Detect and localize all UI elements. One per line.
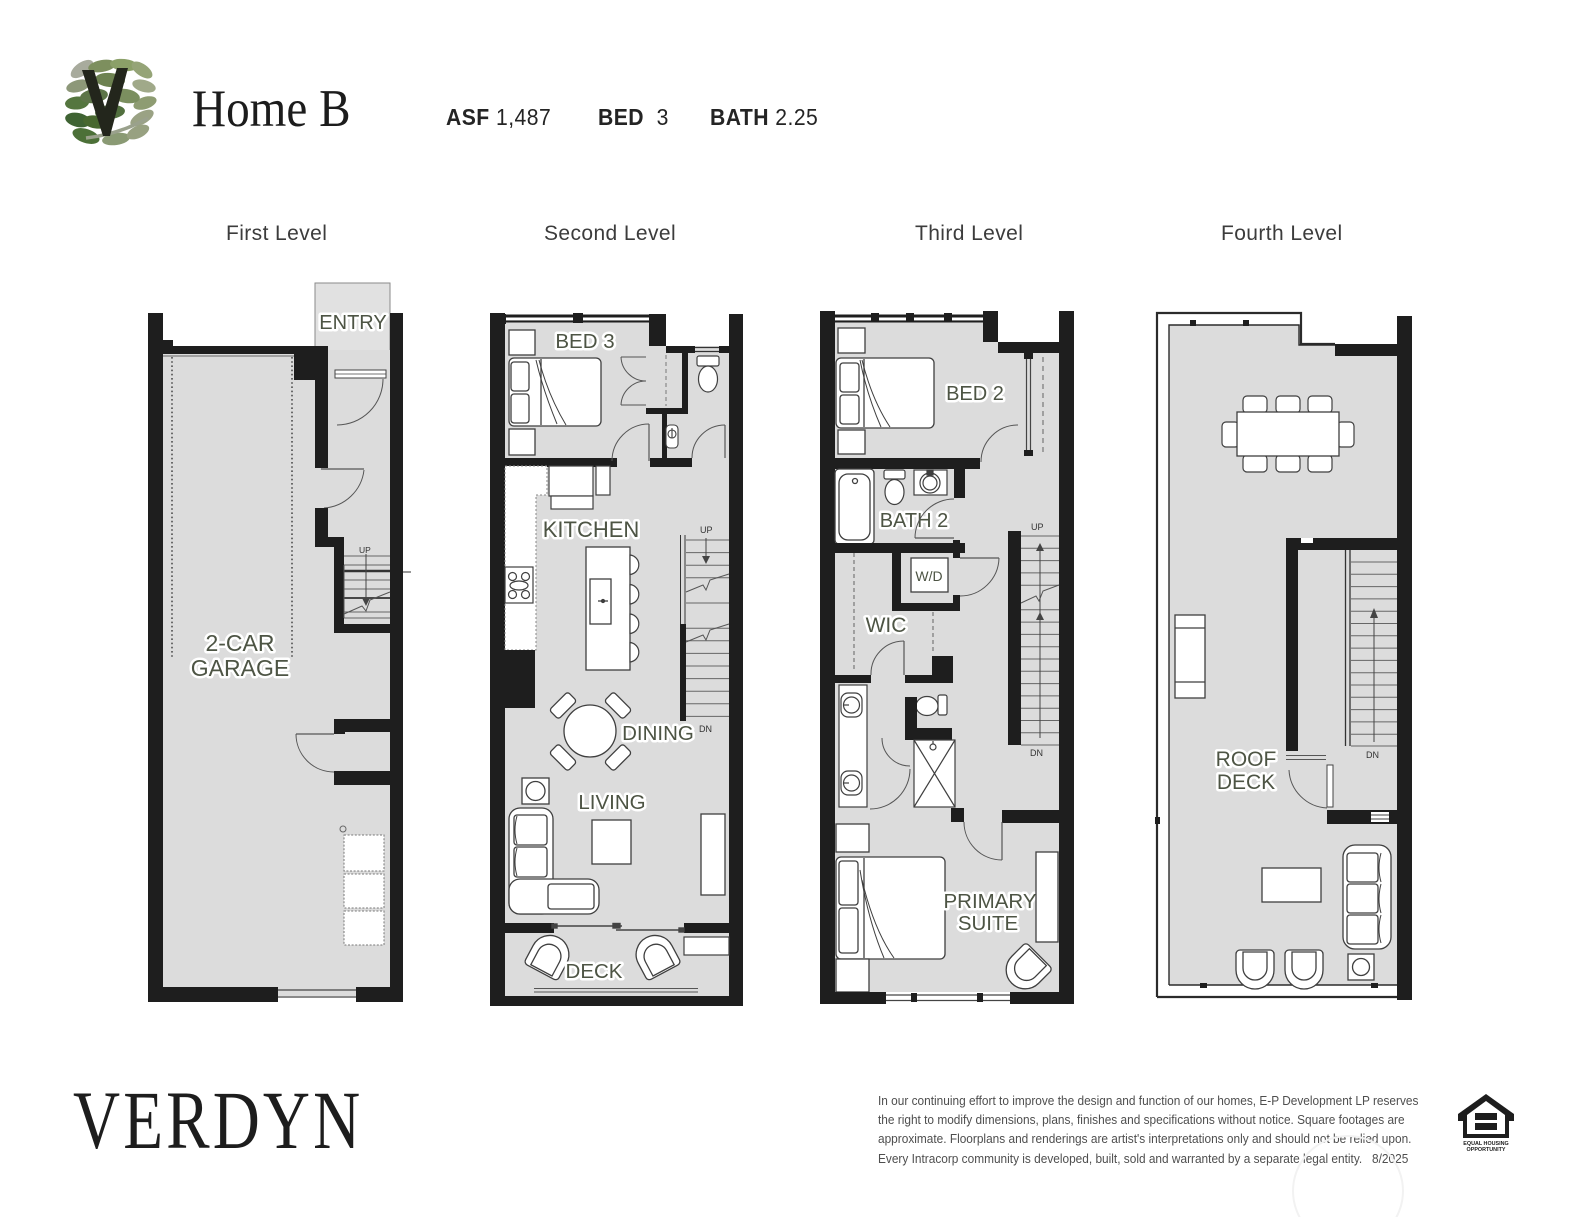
svg-text:DECK: DECK (1217, 771, 1275, 794)
svg-text:BATH 2: BATH 2 (880, 510, 949, 532)
svg-text:SUITE: SUITE (958, 912, 1018, 935)
svg-text:2-CAR: 2-CAR (205, 630, 274, 656)
svg-text:ENTRY: ENTRY (319, 312, 386, 334)
svg-text:KITCHEN: KITCHEN (543, 517, 640, 542)
svg-text:PRIMARY: PRIMARY (943, 890, 1036, 913)
svg-text:DN: DN (1030, 748, 1043, 758)
svg-text:DN: DN (699, 724, 712, 734)
svg-text:DN: DN (1366, 750, 1379, 760)
svg-text:WIC: WIC (866, 614, 907, 637)
svg-text:OPPORTUNITY: OPPORTUNITY (1467, 1147, 1506, 1153)
svg-text:UP: UP (359, 545, 371, 555)
svg-text:LIVING: LIVING (578, 791, 645, 814)
svg-text:DECK: DECK (566, 960, 623, 983)
svg-text:UP: UP (700, 525, 713, 535)
svg-text:BED 2: BED 2 (946, 383, 1004, 405)
svg-text:ROOF: ROOF (1216, 748, 1277, 771)
svg-text:W/D: W/D (915, 568, 942, 584)
svg-text:GARAGE: GARAGE (191, 655, 289, 681)
svg-text:BED 3: BED 3 (555, 330, 614, 353)
svg-text:UP: UP (1031, 522, 1044, 532)
svg-text:DINING: DINING (622, 722, 694, 745)
